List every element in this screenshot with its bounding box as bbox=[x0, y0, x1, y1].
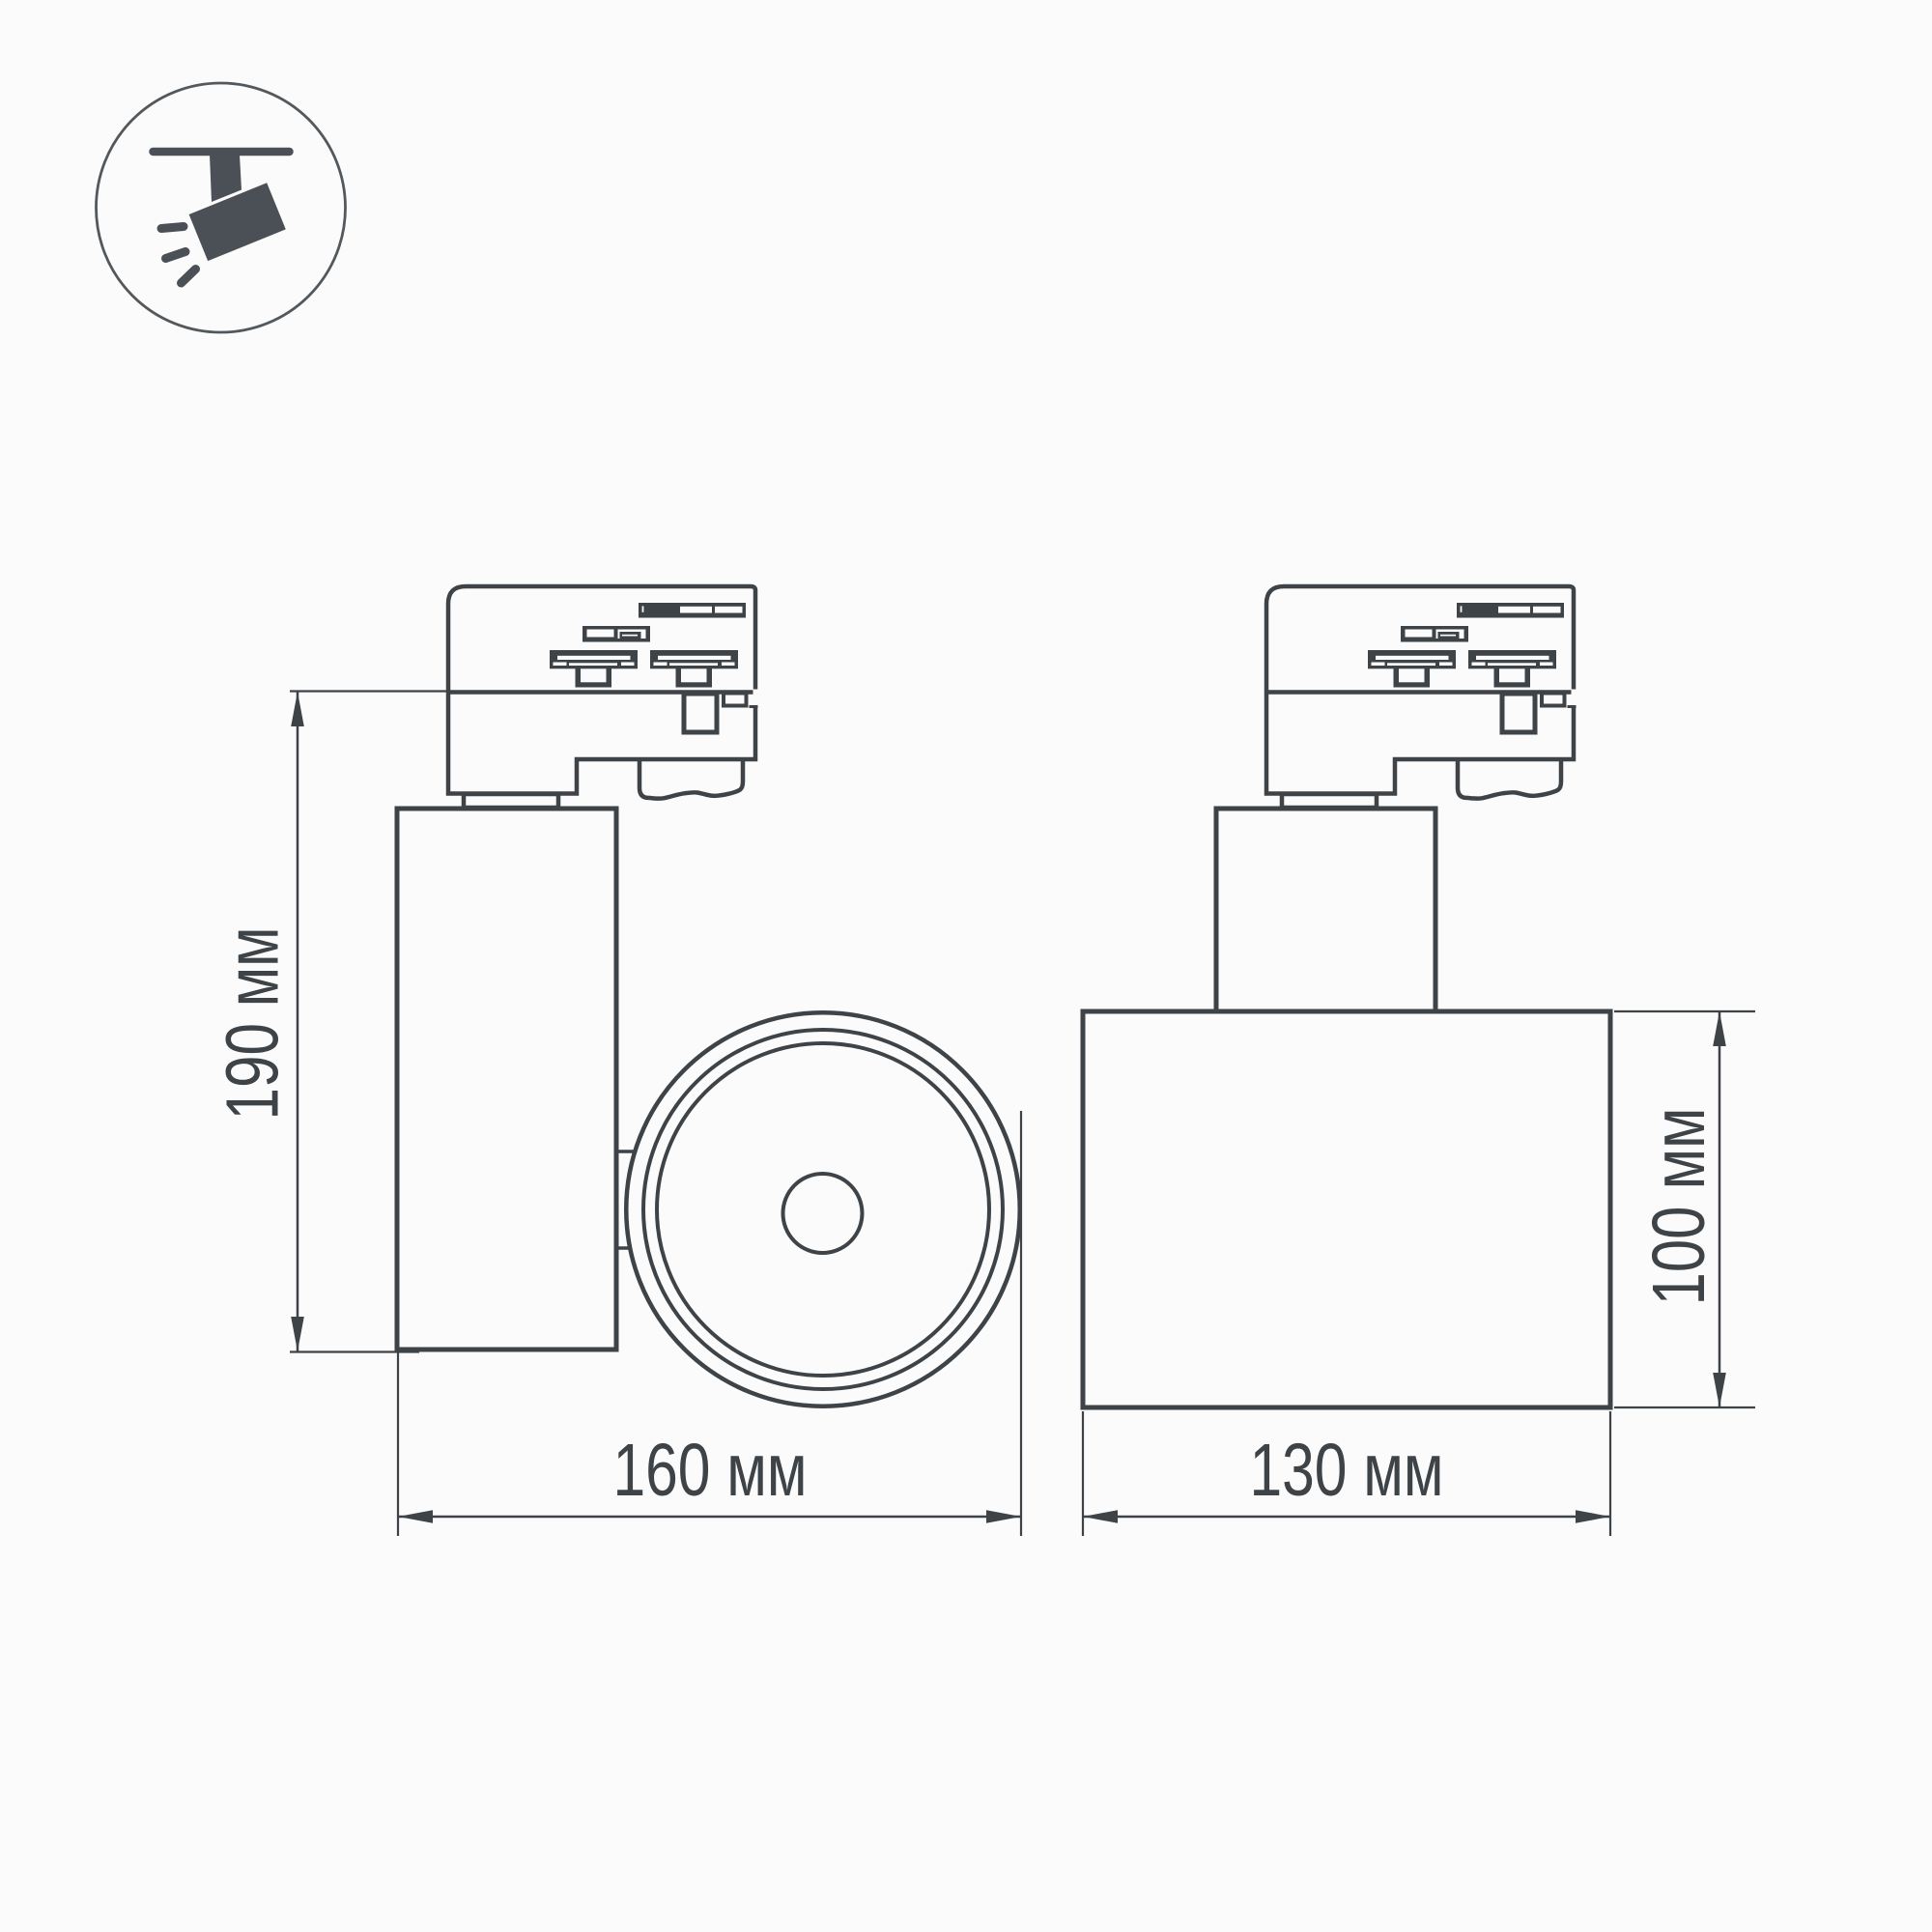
svg-text:190 мм: 190 мм bbox=[212, 927, 295, 1121]
svg-text:100 мм: 100 мм bbox=[1637, 1108, 1720, 1306]
svg-text:160 мм: 160 мм bbox=[613, 1429, 808, 1512]
svg-text:130 мм: 130 мм bbox=[1250, 1429, 1444, 1512]
